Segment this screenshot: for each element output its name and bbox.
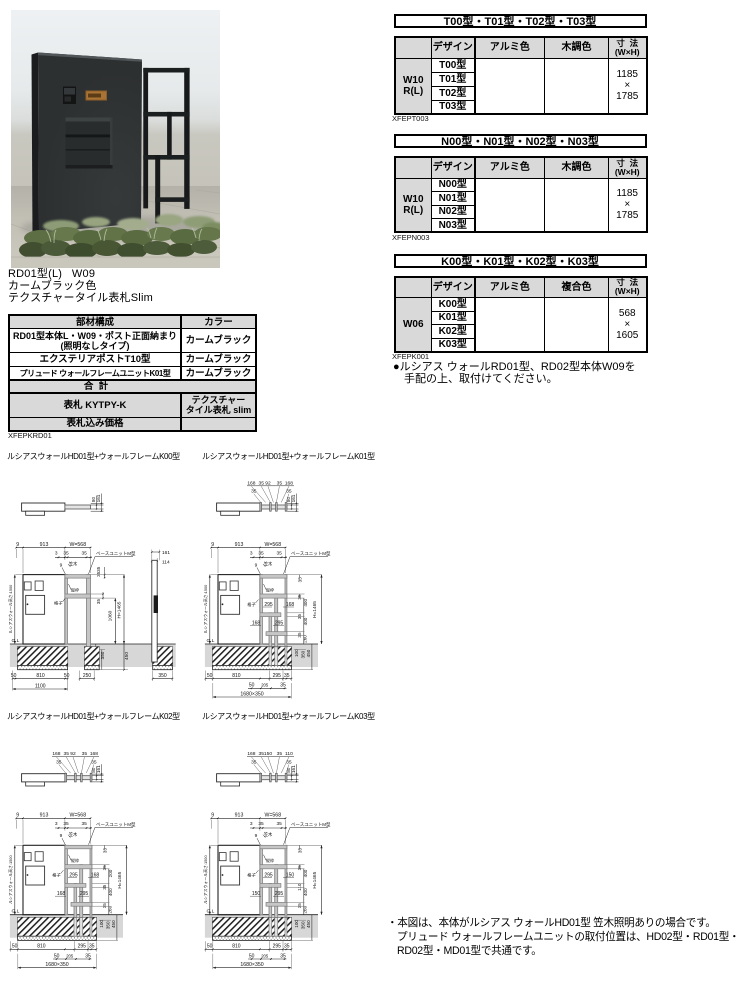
svg-text:260: 260 xyxy=(303,635,308,643)
svg-text:810: 810 xyxy=(37,944,46,950)
svg-text:35: 35 xyxy=(96,566,101,572)
svg-text:ルシアスウォール高さ:1500: ルシアスウォール高さ:1500 xyxy=(8,855,13,904)
svg-text:35: 35 xyxy=(297,903,302,909)
svg-text:W=568: W=568 xyxy=(70,813,87,819)
svg-text:格子: 格子 xyxy=(247,601,255,608)
svg-text:ルシアスウォール高さ:1500: ルシアスウォール高さ:1500 xyxy=(8,584,13,633)
svg-text:縦枠: 縦枠 xyxy=(71,857,80,864)
svg-text:100: 100 xyxy=(294,920,299,928)
svg-text:35: 35 xyxy=(280,953,286,959)
svg-text:G.L: G.L xyxy=(207,909,215,915)
svg-text:縦枠: 縦枠 xyxy=(71,587,80,594)
svg-text:縦枠: 縦枠 xyxy=(266,587,275,594)
svg-text:H=1465: H=1465 xyxy=(117,871,123,888)
svg-text:110: 110 xyxy=(297,883,302,891)
svg-text:H=1465: H=1465 xyxy=(312,601,318,618)
svg-text:161: 161 xyxy=(291,494,296,502)
svg-text:50: 50 xyxy=(249,953,255,959)
svg-text:35: 35 xyxy=(258,821,264,827)
svg-text:35: 35 xyxy=(63,551,69,557)
svg-text:161: 161 xyxy=(162,550,170,556)
svg-text:3: 3 xyxy=(55,551,58,557)
svg-text:810: 810 xyxy=(232,944,241,950)
svg-text:35: 35 xyxy=(297,848,302,854)
svg-text:913: 913 xyxy=(235,813,244,819)
svg-text:W=568: W=568 xyxy=(70,542,87,548)
svg-text:450: 450 xyxy=(306,649,311,657)
svg-text:350: 350 xyxy=(106,921,111,929)
svg-text:810: 810 xyxy=(36,673,45,679)
svg-text:35: 35 xyxy=(277,551,283,557)
svg-text:35: 35 xyxy=(82,551,88,557)
svg-text:350: 350 xyxy=(100,651,105,659)
svg-text:35: 35 xyxy=(286,759,292,765)
svg-text:W=568: W=568 xyxy=(265,542,282,548)
svg-text:260: 260 xyxy=(108,905,113,913)
svg-text:35: 35 xyxy=(277,821,283,827)
svg-text:450: 450 xyxy=(111,920,116,928)
svg-text:450: 450 xyxy=(124,652,130,660)
svg-text:W=568: W=568 xyxy=(265,813,282,819)
svg-text:ルシアスウォール高さ:1500: ルシアスウォール高さ:1500 xyxy=(203,584,208,633)
svg-text:3: 3 xyxy=(250,821,253,827)
svg-text:50: 50 xyxy=(12,944,18,950)
svg-text:913: 913 xyxy=(235,542,244,548)
svg-text:350: 350 xyxy=(301,921,306,929)
svg-text:913: 913 xyxy=(40,542,49,548)
svg-text:35: 35 xyxy=(284,673,290,679)
svg-text:161: 161 xyxy=(96,765,101,773)
svg-text:ベースユニットM型: ベースユニットM型 xyxy=(96,550,136,556)
svg-text:3: 3 xyxy=(250,551,253,557)
svg-text:205: 205 xyxy=(261,683,269,688)
svg-text:35: 35 xyxy=(96,599,101,605)
svg-text:205: 205 xyxy=(261,953,269,958)
svg-text:格子: 格子 xyxy=(54,600,62,607)
svg-text:295: 295 xyxy=(273,673,282,679)
svg-text:100: 100 xyxy=(294,649,299,657)
svg-text:9: 9 xyxy=(16,542,19,548)
svg-text:1060: 1060 xyxy=(107,610,113,621)
svg-text:ベースユニットM型: ベースユニットM型 xyxy=(291,550,331,556)
svg-text:格子: 格子 xyxy=(52,872,60,879)
svg-text:50: 50 xyxy=(54,953,60,959)
svg-text:295: 295 xyxy=(78,944,87,950)
svg-text:50: 50 xyxy=(11,673,17,679)
svg-text:1680×350: 1680×350 xyxy=(240,691,263,697)
svg-text:913: 913 xyxy=(40,813,49,819)
svg-text:35: 35 xyxy=(89,944,95,950)
svg-text:ルシアスウォール高さ:1500: ルシアスウォール高さ:1500 xyxy=(203,855,208,904)
svg-text:114: 114 xyxy=(162,560,170,566)
svg-text:50: 50 xyxy=(64,673,70,679)
svg-text:161: 161 xyxy=(291,765,296,773)
svg-text:50: 50 xyxy=(207,944,213,950)
svg-text:H=1465: H=1465 xyxy=(312,871,318,888)
svg-text:35: 35 xyxy=(102,903,107,909)
svg-text:3: 3 xyxy=(55,821,58,827)
svg-text:35: 35 xyxy=(82,821,88,827)
svg-text:161: 161 xyxy=(96,494,101,502)
svg-text:35: 35 xyxy=(102,884,107,890)
svg-text:350: 350 xyxy=(301,650,306,658)
svg-text:295: 295 xyxy=(273,944,282,950)
svg-text:35: 35 xyxy=(258,551,264,557)
svg-text:9: 9 xyxy=(211,542,214,548)
svg-text:100: 100 xyxy=(99,920,104,928)
svg-text:ベースユニットM型: ベースユニットM型 xyxy=(291,821,331,827)
svg-text:810: 810 xyxy=(232,673,241,679)
svg-text:35: 35 xyxy=(297,577,302,583)
svg-text:35: 35 xyxy=(63,821,69,827)
svg-text:縦枠: 縦枠 xyxy=(266,857,275,864)
svg-text:35: 35 xyxy=(96,571,101,577)
svg-text:格子: 格子 xyxy=(247,872,255,879)
svg-text:35: 35 xyxy=(297,632,302,638)
svg-text:H=1465: H=1465 xyxy=(116,601,122,618)
svg-text:35: 35 xyxy=(284,944,290,950)
svg-text:35: 35 xyxy=(297,614,302,620)
svg-text:G.L: G.L xyxy=(12,638,20,644)
svg-text:350: 350 xyxy=(158,673,167,679)
svg-text:260: 260 xyxy=(303,905,308,913)
svg-text:450: 450 xyxy=(306,920,311,928)
svg-text:50: 50 xyxy=(249,683,255,689)
svg-text:35: 35 xyxy=(85,953,91,959)
svg-text:35: 35 xyxy=(286,489,292,495)
svg-text:35: 35 xyxy=(280,683,286,689)
svg-text:1680×350: 1680×350 xyxy=(45,962,68,968)
svg-text:35: 35 xyxy=(102,848,107,854)
svg-text:1100: 1100 xyxy=(35,683,46,689)
svg-text:G.L: G.L xyxy=(12,909,20,915)
svg-text:250: 250 xyxy=(83,673,92,679)
svg-text:ベースユニットM型: ベースユニットM型 xyxy=(96,821,136,827)
svg-text:1680×350: 1680×350 xyxy=(240,962,263,968)
svg-text:9: 9 xyxy=(211,813,214,819)
svg-text:205: 205 xyxy=(66,953,74,958)
svg-text:G.L: G.L xyxy=(207,638,215,644)
svg-text:35: 35 xyxy=(91,759,97,765)
svg-text:50: 50 xyxy=(207,673,213,679)
svg-text:9: 9 xyxy=(16,813,19,819)
